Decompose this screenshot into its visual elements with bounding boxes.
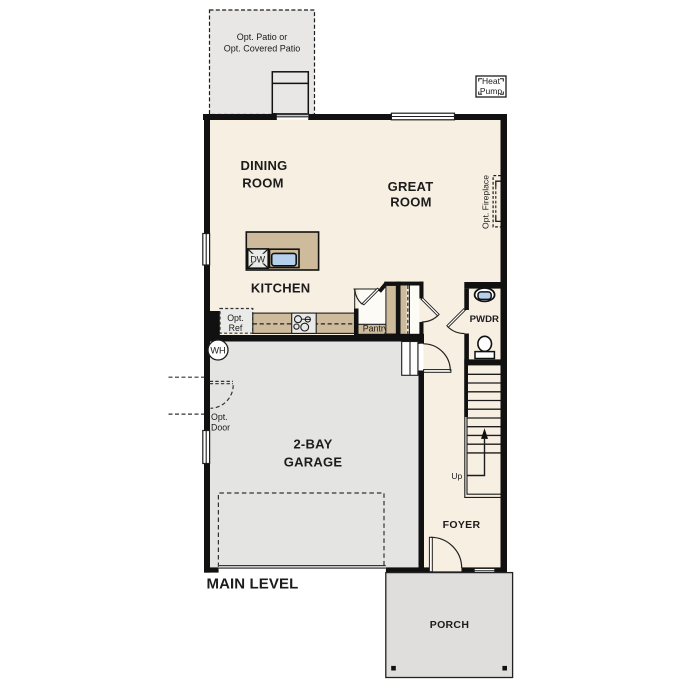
svg-text:KITCHEN: KITCHEN bbox=[251, 280, 311, 295]
svg-text:Up: Up bbox=[451, 471, 462, 481]
svg-text:Opt. Fireplace: Opt. Fireplace bbox=[480, 175, 490, 229]
svg-text:Opt.: Opt. bbox=[227, 313, 244, 323]
svg-text:Heat: Heat bbox=[482, 76, 501, 86]
svg-text:Opt. Patio or: Opt. Patio or bbox=[237, 32, 288, 42]
svg-text:2-BAY: 2-BAY bbox=[293, 437, 332, 452]
svg-text:ROOM: ROOM bbox=[242, 175, 283, 190]
svg-text:ROOM: ROOM bbox=[390, 195, 431, 210]
svg-text:GREAT: GREAT bbox=[388, 179, 434, 194]
svg-text:PWDR: PWDR bbox=[470, 314, 499, 325]
svg-text:Ref: Ref bbox=[229, 323, 243, 333]
svg-text:DW: DW bbox=[250, 254, 265, 264]
svg-text:Pump: Pump bbox=[480, 86, 502, 96]
svg-text:Door: Door bbox=[211, 423, 230, 433]
svg-text:WH: WH bbox=[210, 345, 225, 355]
svg-text:MAIN LEVEL: MAIN LEVEL bbox=[207, 576, 299, 593]
svg-text:Opt. Covered Patio: Opt. Covered Patio bbox=[224, 43, 301, 53]
svg-text:FOYER: FOYER bbox=[443, 519, 481, 531]
svg-text:Opt.: Opt. bbox=[211, 412, 228, 422]
svg-text:PORCH: PORCH bbox=[430, 619, 469, 631]
svg-text:GARAGE: GARAGE bbox=[284, 454, 343, 469]
svg-text:Pantry: Pantry bbox=[363, 324, 389, 334]
svg-text:DINING: DINING bbox=[241, 158, 288, 173]
